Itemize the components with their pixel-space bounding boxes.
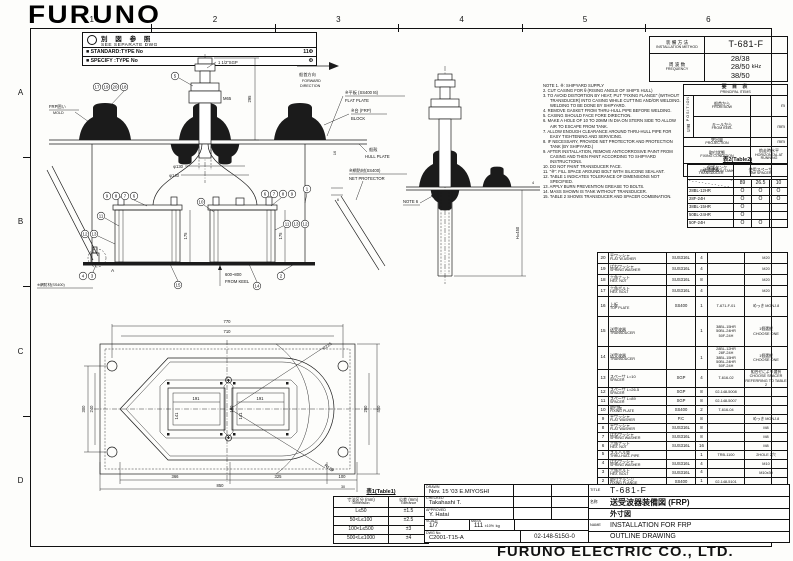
parts-row: 4 ばねワッシャSPRING WASHER SUS316L 4 M10: [598, 459, 788, 468]
spacer-mark: O: [770, 188, 788, 196]
dim-191-right: 191: [257, 396, 265, 401]
net-protector-jp: ※網防材(SS400): [349, 167, 381, 174]
see-separate-dwg-jp: 別 図 参 照: [101, 33, 158, 43]
callout-group-11-13-12: 11 13 12: [275, 220, 309, 230]
part-remarks: M10x30: [745, 468, 788, 477]
zone-number: 6: [647, 15, 770, 26]
part-qty: 8: [696, 433, 708, 442]
tolerance-value: ±3: [388, 526, 428, 535]
dim-141-left: 141: [174, 412, 179, 420]
part-dwg-no: 28BL-12HR 28F-24H 38BL-15HR 50BL-24HR 50…: [708, 347, 745, 370]
spacer-mark: O: [770, 196, 788, 204]
svg-text:13: 13: [92, 232, 97, 237]
spacer-mark: O: [752, 196, 770, 204]
table2-row: 50BL-24HR O: [688, 212, 788, 220]
part-qty: 4: [696, 253, 708, 264]
from-bow-unit: m: [751, 96, 788, 117]
spacer-mark: [770, 212, 788, 220]
from-keel-label: FROM KEEL: [225, 279, 250, 284]
parts-list-table: 20 平ワッシャFLAT W ASHER SUS316L 4 M20 19 ばね…: [597, 252, 788, 507]
callout-group-4-3: 4 3: [79, 265, 96, 280]
notes-block: NOTE 1. ※: SHIPYARD SUPPLY2. CUT CASING …: [543, 83, 683, 199]
note6-label: NOTE 6: [403, 199, 419, 204]
svg-text:13: 13: [294, 222, 299, 227]
part-no: 5: [598, 450, 609, 459]
see-separate-dwg-en: SEE SEPARATE DWG: [101, 43, 158, 48]
part-dwg-no: [708, 424, 745, 433]
net-protector-en: NET PROTECTOR: [349, 176, 385, 181]
transducer-model: 38BL-15HR: [688, 204, 734, 212]
zone-tick: [645, 24, 646, 32]
part-dwg-no: 38BL-15HR 50BL-24HR 50F-24H: [708, 317, 745, 347]
callout-group-left: 9 8 7 6: [103, 192, 147, 206]
dim-240: 240: [89, 405, 94, 413]
from-keel-en: FROM KEEL: [694, 127, 750, 131]
front-section-view: 1 1/2"SGP 295 M65 φ130 φ140 175 175: [35, 48, 425, 298]
svg-text:17: 17: [95, 85, 100, 90]
part-dwg-no: [708, 433, 745, 442]
svg-text:14: 14: [255, 284, 260, 289]
zone-tick: [23, 286, 31, 287]
hull-plate-jp: 船殻: [369, 146, 378, 153]
part-name-en: SPRING WASHER: [610, 269, 666, 273]
table2-row: 50F-24H O O: [688, 220, 788, 228]
part-qty: 4: [696, 468, 708, 477]
part-no: 19: [598, 264, 609, 275]
method-frequency-table: 装 備 方 法INSTALLATION METHOD T-681-F 周 波 数…: [649, 36, 788, 82]
frequency-unit: kHz: [752, 65, 761, 71]
table2-title: 表2(Table2): [687, 155, 788, 163]
part-name-en: SPACER: [610, 379, 666, 383]
part-material: P.C: [667, 415, 696, 424]
principal-title-en: PRINCIPAL ITEMS: [684, 91, 787, 95]
drawing-subtitle-jp: 外寸図: [610, 509, 631, 519]
parts-row: 15 送受波器TRANSDUCER 1 38BL-15HR 50BL-24HR …: [598, 317, 788, 347]
dim-10: 10: [330, 468, 334, 472]
part-remarks: 2HOLE 2穴: [745, 450, 788, 459]
part-no: 16: [598, 297, 609, 317]
part-remarks: M10: [745, 459, 788, 468]
part-remarks: 1個選択 CHOOSE ONE: [745, 347, 788, 370]
dim-300: 300: [81, 405, 86, 413]
dimension-range: 50<L≤100: [334, 517, 389, 526]
callout-group-12-13: 12 13: [81, 230, 115, 244]
forward-direction-arrow-icon: [297, 62, 339, 70]
forward-jp: 船首方向: [299, 71, 316, 78]
tolerance-value: ±2.5: [388, 517, 428, 526]
part-dwg-no: T-671-F-01: [708, 297, 745, 317]
dim-450: 450: [376, 405, 381, 413]
part-dwg-no: [708, 415, 745, 424]
dim-175-right: 175: [278, 232, 283, 240]
part-qty: 4: [696, 286, 708, 297]
part-dwg-no: [708, 275, 745, 286]
part-qty: 8: [696, 415, 708, 424]
part-qty: 1: [696, 450, 708, 459]
dwg-no-label: DWG No.: [426, 532, 441, 536]
part-material: SUS316L: [667, 468, 696, 477]
part-qty: 1: [696, 347, 708, 370]
part-remarks: M8: [745, 433, 788, 442]
spacer-mark: O: [734, 196, 752, 204]
pipe-size-label: 1 1/2"SGP: [218, 60, 238, 65]
part-material: SS400: [667, 297, 696, 317]
parts-row: 11 スペーサ L=89SPACER SGP 8 02-148-5007: [598, 397, 788, 406]
part-no: 11: [598, 397, 609, 406]
zone-number: 4: [400, 15, 523, 26]
zone-tick: [275, 24, 276, 32]
part-name-en: FLAT W ASHER: [610, 258, 666, 262]
part-no: 3: [598, 468, 609, 477]
part-no: 8: [598, 424, 609, 433]
spacer-mark: [770, 204, 788, 212]
table2-row: 38BL-15HR O: [688, 204, 788, 212]
svg-text:10: 10: [199, 200, 204, 205]
spacer-combination-table: 表2(Table2) 送受波器TRANSDUCER 使用スペーサUse SPAC…: [687, 155, 788, 228]
part-material: [667, 450, 696, 459]
part-qty: 8: [696, 388, 708, 397]
part-material: SUS316L: [667, 459, 696, 468]
dim-plate-16: 16: [333, 151, 337, 155]
part-material: [667, 317, 696, 347]
tolerance-value: ±4: [388, 535, 428, 544]
block-jp: ※台 (FRP): [351, 107, 372, 114]
flat-plate-en: FLAT PLATE: [345, 98, 369, 103]
table2-row: 28BL-12HR O O O: [688, 188, 788, 196]
parts-row: 16 上板TOP PLATE SS400 1 T-671-F-01 めっき MO…: [598, 297, 788, 317]
spacer-mark: O: [734, 212, 752, 220]
svg-text:18: 18: [122, 85, 127, 90]
diagonal-cell: [688, 180, 734, 188]
part-no: 20: [598, 253, 609, 264]
part-no: 6: [598, 441, 609, 450]
drawing-title-en: INSTALLATION FOR FRP: [610, 522, 691, 529]
spacer-size: 10: [770, 180, 788, 188]
mass-label: MASS: [471, 520, 481, 524]
dim-dia130: φ130: [173, 164, 183, 169]
part-no: 18: [598, 275, 609, 286]
part-material: SGP: [667, 397, 696, 406]
spacer-mark: O: [734, 204, 752, 212]
revision-mark-icon: [87, 35, 97, 45]
tolerance-row: 50<L≤100 ±2.5: [334, 517, 429, 526]
part-name-en: TRANSDUCER: [610, 332, 666, 336]
part-remarks: めっき MONJ.8: [745, 297, 788, 317]
part-name-en: TRANSDUCER: [610, 358, 666, 362]
dimension-range: 100<L≤500: [334, 526, 389, 535]
part-remarks: M20: [745, 264, 788, 275]
thread-label: M65: [223, 96, 232, 101]
zone-letter: D: [15, 416, 26, 545]
dimension-range: 500<L≤1000: [334, 535, 389, 544]
mold-label-jp: FRP囲い: [49, 104, 66, 110]
part-name-en: HEX. BOLT: [610, 291, 666, 295]
part-qty: 4: [696, 459, 708, 468]
tolerance-col-header: Tolerance: [389, 502, 428, 506]
part-dwg-no: TRB-1100: [708, 450, 745, 459]
spacer-mark: O: [734, 220, 752, 228]
table2-row: 28F-24H O O O: [688, 196, 788, 204]
mass-tolerance: ±10%: [485, 524, 494, 528]
projection-unit: mm: [751, 138, 788, 147]
parts-row: 14 送受波器TRANSDUCER 1 28BL-12HR 28F-24H 38…: [598, 347, 788, 370]
zone-tick: [398, 24, 399, 32]
spacer-mark: O: [752, 220, 770, 228]
block-en: BLOCK: [351, 116, 365, 121]
svg-text:19: 19: [104, 85, 109, 90]
parts-row: 3 六角ボルトHEX. BOLT SUS316L 4 M10x30: [598, 468, 788, 477]
svg-text:12: 12: [303, 222, 308, 227]
dim-850: 850: [217, 483, 225, 488]
spacer-size: 26.5: [752, 180, 770, 188]
note-line: 9. AFTER INSTALLATION, REMOVE ANTICORROS…: [543, 149, 683, 164]
dim-30: 30: [341, 485, 345, 489]
material-code: 02-148-515G-0: [534, 534, 575, 540]
part-dwg-no: 02-148-5007: [708, 397, 745, 406]
dim-r225: R225: [322, 341, 334, 351]
part-dwg-no: [708, 264, 745, 275]
transducer-model: 50BL-24HR: [688, 212, 734, 220]
bolt-hole: [338, 447, 348, 457]
part-qty: 8: [696, 275, 708, 286]
tolerance-row: 500<L≤1000 ±4: [334, 535, 429, 544]
part-remarks: [745, 406, 788, 415]
part-material: SUS316L: [667, 286, 696, 297]
dim-gap-6: 6: [337, 198, 339, 202]
position-label: 位置 POSITION: [687, 96, 691, 132]
part-dwg-no: [708, 468, 745, 477]
note-line: 8. IF NECESSARY, PROVIDE NET PROTECTOR A…: [543, 139, 683, 149]
zone-number: 2: [153, 15, 276, 26]
drawing-type-code: T-681-F: [610, 485, 647, 495]
part-no: 15: [598, 317, 609, 347]
name-en-label: NAME: [589, 523, 610, 527]
part-remarks: M8: [745, 424, 788, 433]
part-material: SUS316L: [667, 441, 696, 450]
parts-row: 20 平ワッシャFLAT W ASHER SUS316L 4 M20: [598, 253, 788, 264]
zone-letter: C: [15, 287, 26, 416]
spacer-mark: O: [734, 188, 752, 196]
part-material: [667, 347, 696, 370]
part-no: 12: [598, 388, 609, 397]
keel-plate-icon: [83, 262, 315, 266]
part-remarks: [745, 388, 788, 397]
bolt-hole: [107, 361, 117, 371]
part-remarks: M20: [745, 253, 788, 264]
flat-plate-jp: ※平板 (SS400 t6): [345, 89, 379, 96]
part-no: 4: [598, 459, 609, 468]
dim-295: 295: [247, 95, 252, 103]
dimension-range: L≤50: [334, 508, 389, 517]
part-remarks: 1個選択 CHOOSE ONE: [745, 317, 788, 347]
part-material: SGP: [667, 369, 696, 387]
method-label-en: INSTALLATION METHOD: [650, 46, 704, 50]
bolt-hole: [107, 447, 117, 457]
part-qty: 4: [696, 369, 708, 387]
part-no: 17: [598, 286, 609, 297]
drawing-title-jp: 送受波器装備図 (FRP): [610, 497, 690, 508]
part-material: SUS316L: [667, 264, 696, 275]
part-dwg-no: 02-148-5008: [708, 388, 745, 397]
dim-366: 366: [172, 474, 180, 479]
company-name: FURUNO ELECTRIC CO., LTD.: [497, 543, 734, 559]
zone-number: 1: [30, 15, 153, 26]
drawn-date: Nov. 15 '03: [429, 489, 458, 495]
part-name-en: HEX. NUT: [610, 280, 666, 284]
zone-tick: [151, 24, 152, 32]
part-dwg-no: [708, 441, 745, 450]
name-jp-label: 名称: [589, 500, 610, 505]
dim-250: 250: [363, 405, 368, 413]
net-protector-left-label: ※網防材(SS400): [37, 282, 65, 287]
detail-a-label: A: [111, 268, 115, 274]
part-qty: 8: [696, 397, 708, 406]
part-material: SUS316L: [667, 253, 696, 264]
part-dwg-no: [708, 459, 745, 468]
transducer-model: 28BL-12HR: [688, 188, 734, 196]
part-material: SUS316L: [667, 275, 696, 286]
part-dwg-no: [708, 253, 745, 264]
part-qty: 8: [696, 424, 708, 433]
bolt-hole: [338, 361, 348, 371]
dim-710: 710: [224, 329, 232, 334]
hull-plate-en: HULL PLATE: [365, 154, 390, 159]
dim-h450: H=450: [515, 226, 520, 239]
note-line: 6. MAKE A HOLE OF 10 TO 20MM IN DIA ON S…: [543, 118, 683, 128]
title-block: DRAWNNov. 15 '03 E.MIYOSHI CHECKEDTakaha…: [424, 484, 790, 543]
mass-unit: kg: [496, 523, 500, 528]
drawing-sheet: FURUNO 123456 ABCD 別 図 参 照 SEE SEPARATE …: [0, 0, 793, 561]
note-line: 3. TO AVOID DISTORTION BY HEAT, PUT "FIX…: [543, 93, 683, 108]
from-bow-en: FROM BOW: [694, 106, 750, 110]
part-dwg-no: T-616-04: [708, 406, 745, 415]
part-no: 9: [598, 415, 609, 424]
frequency-value: 38/50: [731, 72, 750, 81]
zone-letter: B: [15, 157, 26, 286]
spacer-header-en: Use SPACER: [734, 172, 787, 176]
callout-group-top: 17 19 20 18: [93, 83, 128, 106]
dim-191-left: 191: [193, 396, 201, 401]
tolerance-table: 表1(Table1) 寸法区分 (mm)Dimension 公差 (mm)Tol…: [333, 487, 429, 544]
part-remarks: M20: [745, 275, 788, 286]
mass-value: 111: [474, 523, 483, 529]
part-dwg-no: T-616-02: [708, 369, 745, 387]
dim-175-left: 175: [183, 232, 188, 240]
zone-tick: [23, 157, 31, 158]
transducer-box-icon: [210, 210, 275, 262]
svg-text:15: 15: [176, 283, 181, 288]
tolerance-value: ±1.5: [388, 508, 428, 517]
parts-row: 19 ばねワッシャSPRING WASHER SUS316L 4 M20: [598, 264, 788, 275]
checked-label: CHECKED: [426, 497, 444, 501]
dim-4: 4: [532, 181, 534, 185]
spacer-mark: [770, 220, 788, 228]
part-no: 7: [598, 433, 609, 442]
approved-name: Y. Hatai: [425, 512, 449, 519]
part-qty: 16: [696, 441, 708, 450]
svg-text:11: 11: [285, 222, 290, 227]
spacer-mark: O: [752, 188, 770, 196]
part-qty: 1: [696, 297, 708, 317]
from-keel-value: 600~800: [225, 272, 242, 277]
plan-view: 770 710 300 240 450 250 191 191 141 141 …: [80, 296, 430, 492]
note-line: 7. ALLOW ENOUGH CLEARANCE AROUND THRU-HU…: [543, 129, 683, 139]
zone-number: 5: [523, 15, 646, 26]
part-material: SUS316L: [667, 433, 696, 442]
parts-row: 18 六角ナットHEX. NUT SUS316L 8 M20: [598, 275, 788, 286]
part-remarks: 組合せにより選択 CHOOSE SPACER REFERRING TO TABL…: [745, 369, 788, 387]
approved-label: APPROVED: [426, 509, 446, 513]
parts-row: 13 スペーサ L=10SPACER SGP 4 T-616-02 組合せにより…: [598, 369, 788, 387]
zone-numbers: 123456: [30, 15, 770, 26]
part-remarks: M20: [745, 286, 788, 297]
scale-label: SCALE: [426, 520, 438, 524]
part-material: SS400: [667, 406, 696, 415]
spacer-size: 89: [734, 180, 752, 188]
side-view: NOTE 6 H=450 4: [400, 52, 545, 295]
installation-method-value: T-681-F: [705, 37, 788, 54]
dim-325: 325: [275, 474, 283, 479]
drawing-subtitle-en: OUTLINE DRAWING: [610, 533, 676, 540]
parts-row: 17 六角ボルトHEX. BOLT SUS316L 4 M20: [598, 286, 788, 297]
tolerance-row: 100<L≤500 ±3: [334, 526, 429, 535]
part-qty: 4: [696, 264, 708, 275]
part-dwg-no: [708, 286, 745, 297]
zone-tick: [23, 416, 31, 417]
forward-en1: FORWARD: [302, 79, 321, 83]
note-line: 12. TABLE 1 INDICATES TOLERANCE OF DIMEN…: [543, 174, 683, 184]
part-name-en: TOP PLATE: [610, 307, 666, 311]
part-no: 10: [598, 406, 609, 415]
transducer-model: 28F-24H: [688, 196, 734, 204]
part-remarks: M8: [745, 441, 788, 450]
dim-180: 180: [229, 405, 234, 413]
frequency-label-en: FREQUENCY: [650, 68, 704, 72]
part-qty: 1: [696, 317, 708, 347]
part-qty: 2: [696, 406, 708, 415]
part-material: SUS316L: [667, 424, 696, 433]
svg-text:12: 12: [83, 232, 88, 237]
part-remarks: めっき MONJ.8: [745, 415, 788, 424]
transducer-model: 50F-24H: [688, 220, 734, 228]
checked-name: Takahashi T.: [425, 500, 461, 507]
from-keel-unit: mm: [751, 117, 788, 138]
part-no: 14: [598, 347, 609, 370]
projection-en: PROJECTION: [684, 142, 750, 146]
spacer-mark: [752, 212, 770, 220]
dim-100: 100: [339, 474, 347, 479]
mold-label-en: MOLD: [53, 111, 64, 115]
drawn-name: E.MIYOSHI: [459, 489, 489, 495]
zone-letter: A: [15, 28, 26, 157]
svg-text:11: 11: [99, 214, 104, 219]
transducer-header-en: TRANSDUCER: [689, 172, 733, 176]
part-remarks: [745, 397, 788, 406]
part-material: SGP: [667, 388, 696, 397]
transducer-box-icon: [115, 210, 180, 262]
note-line: 15. TABLE 2 SHOWS TRANSDUCER AND SPACER …: [543, 194, 683, 199]
title-label: TITLE: [589, 488, 610, 492]
part-no: 13: [598, 369, 609, 387]
zone-number: 3: [277, 15, 400, 26]
dimension-col-header: Dimension: [334, 502, 388, 506]
dwg-no-value: C2001-T15-A: [425, 535, 464, 542]
spacer-mark: [752, 204, 770, 212]
tolerance-row: L≤50 ±1.5: [334, 508, 429, 517]
svg-text:20: 20: [113, 85, 118, 90]
dim-770: 770: [224, 319, 232, 324]
forward-en2: DIRECTION: [300, 84, 321, 88]
